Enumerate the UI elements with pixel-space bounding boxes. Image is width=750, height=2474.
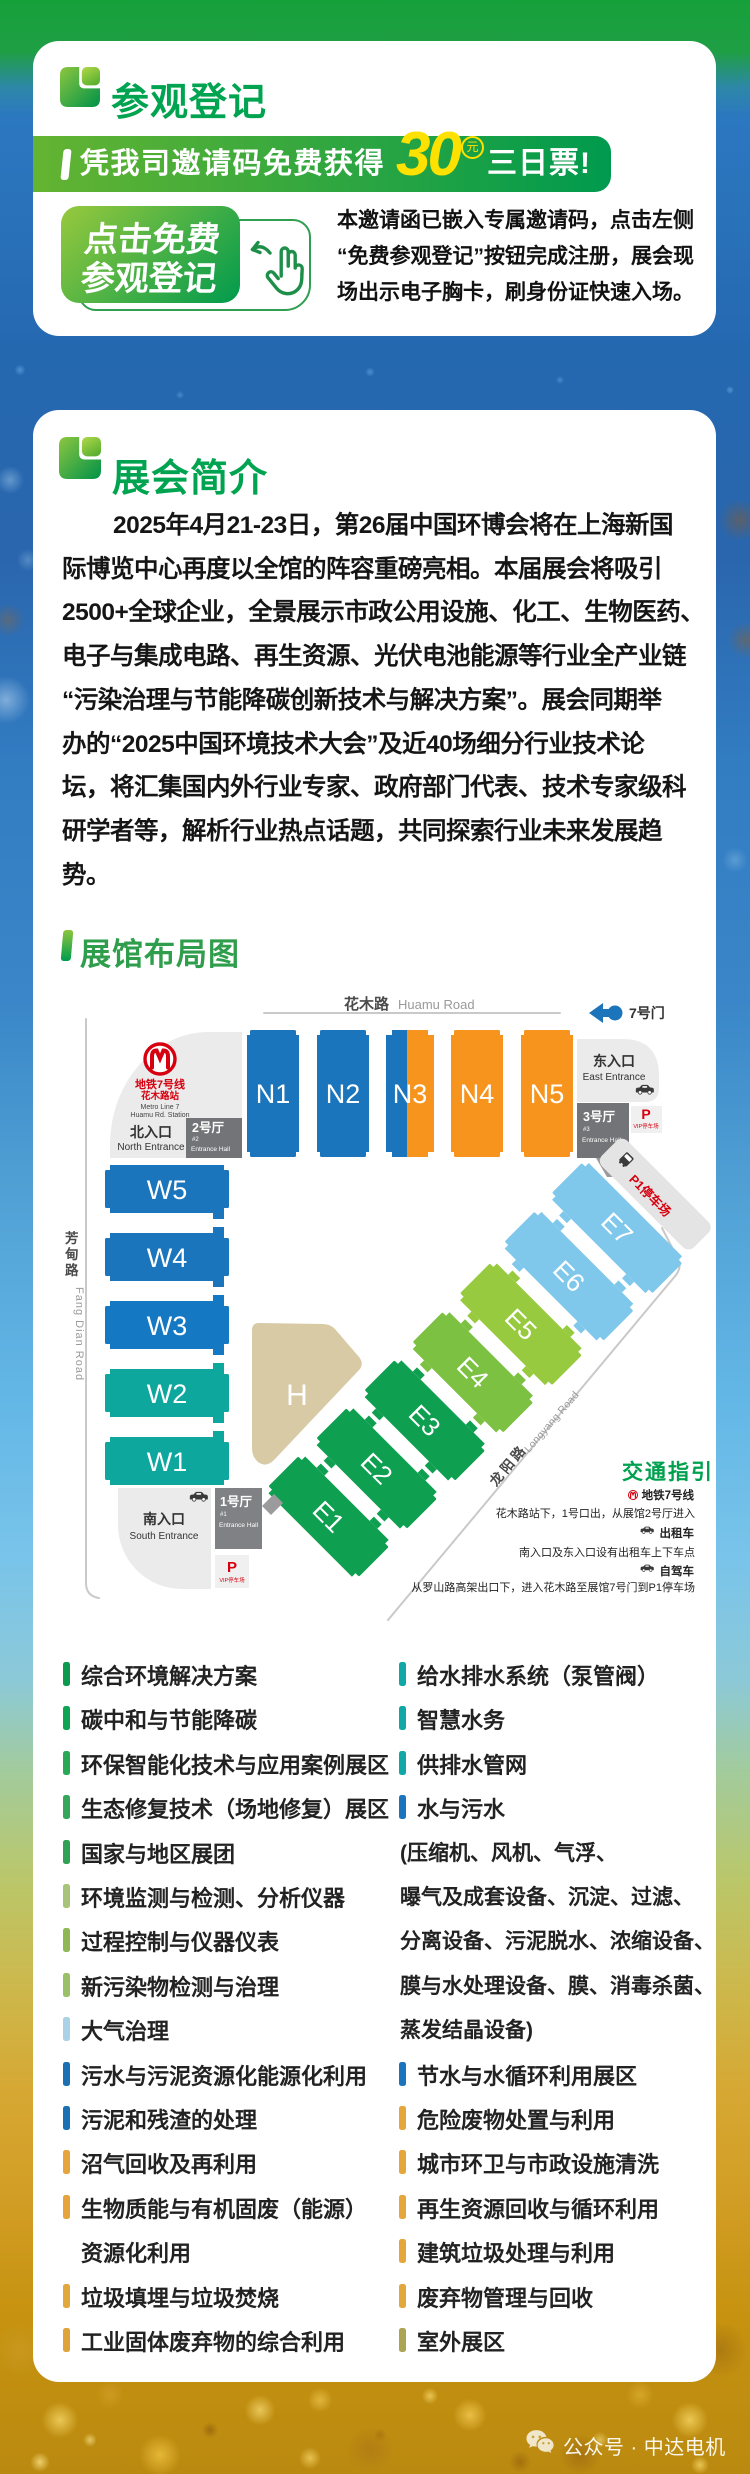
svg-text:N4: N4: [460, 1079, 495, 1109]
svg-text:3号厅: 3号厅: [583, 1109, 615, 1124]
svg-text:#3: #3: [583, 1127, 590, 1133]
svg-text:花木路站: 花木路站: [141, 1090, 180, 1102]
svg-text:Longyang Road: Longyang Road: [522, 1389, 581, 1455]
svg-text:南入口: 南入口: [143, 1511, 185, 1527]
svg-text:H: H: [286, 1379, 308, 1412]
svg-text:W1: W1: [147, 1447, 188, 1477]
svg-text:East Entrance: East Entrance: [583, 1072, 646, 1083]
svg-text:W4: W4: [147, 1243, 188, 1273]
svg-text:1号厅: 1号厅: [220, 1494, 252, 1509]
svg-text:7号门: 7号门: [629, 1005, 665, 1021]
svg-text:P: P: [641, 1106, 650, 1122]
svg-text:Entrance Hall: Entrance Hall: [219, 1522, 259, 1529]
svg-text:出租车: 出租车: [660, 1526, 695, 1540]
svg-text:Huamu Road: Huamu Road: [398, 997, 475, 1012]
svg-text:South Entrance: South Entrance: [130, 1531, 199, 1542]
svg-text:地铁7号线: 地铁7号线: [135, 1077, 185, 1091]
svg-text:#1: #1: [220, 1512, 227, 1518]
svg-text:Huamu Rd. Station: Huamu Rd. Station: [130, 1112, 189, 1119]
svg-text:Metro Line 7: Metro Line 7: [141, 1104, 180, 1111]
svg-text:VIP停车场: VIP停车场: [219, 1576, 245, 1584]
svg-text:从罗山路高架出口下，进入花木路至展馆7号门到P1停车场: 从罗山路高架出口下，进入花木路至展馆7号门到P1停车场: [411, 1580, 695, 1594]
svg-text:N1: N1: [256, 1079, 291, 1109]
svg-text:North Entrance: North Entrance: [117, 1142, 185, 1153]
svg-text:花木路: 花木路: [344, 995, 390, 1013]
svg-text:VIP停车场: VIP停车场: [633, 1122, 659, 1130]
svg-text:W5: W5: [147, 1175, 188, 1205]
svg-text:W2: W2: [147, 1379, 188, 1409]
svg-text:北入口: 北入口: [130, 1124, 172, 1140]
svg-text:P: P: [227, 1559, 237, 1576]
svg-text:#2: #2: [192, 1137, 199, 1143]
svg-text:芳甸路: 芳甸路: [65, 1230, 79, 1278]
svg-text:W3: W3: [147, 1311, 188, 1341]
svg-text:2号厅: 2号厅: [192, 1120, 224, 1135]
svg-text:N5: N5: [530, 1079, 565, 1109]
svg-text:自驾车: 自驾车: [660, 1564, 695, 1578]
svg-text:N2: N2: [326, 1079, 361, 1109]
svg-text:花木路站下，1号口出，从展馆2号厅进入: 花木路站下，1号口出，从展馆2号厅进入: [496, 1506, 695, 1520]
svg-text:Fang Dian Road: Fang Dian Road: [73, 1287, 85, 1381]
svg-text:地铁7号线: 地铁7号线: [642, 1488, 695, 1502]
svg-text:交通指引: 交通指引: [622, 1460, 714, 1484]
svg-text:N3: N3: [393, 1079, 428, 1109]
svg-text:南入口及东入口设有出租车上下车点: 南入口及东入口设有出租车上下车点: [519, 1545, 695, 1559]
svg-text:Entrance Hall: Entrance Hall: [191, 1146, 231, 1153]
svg-text:东入口: 东入口: [593, 1053, 635, 1069]
